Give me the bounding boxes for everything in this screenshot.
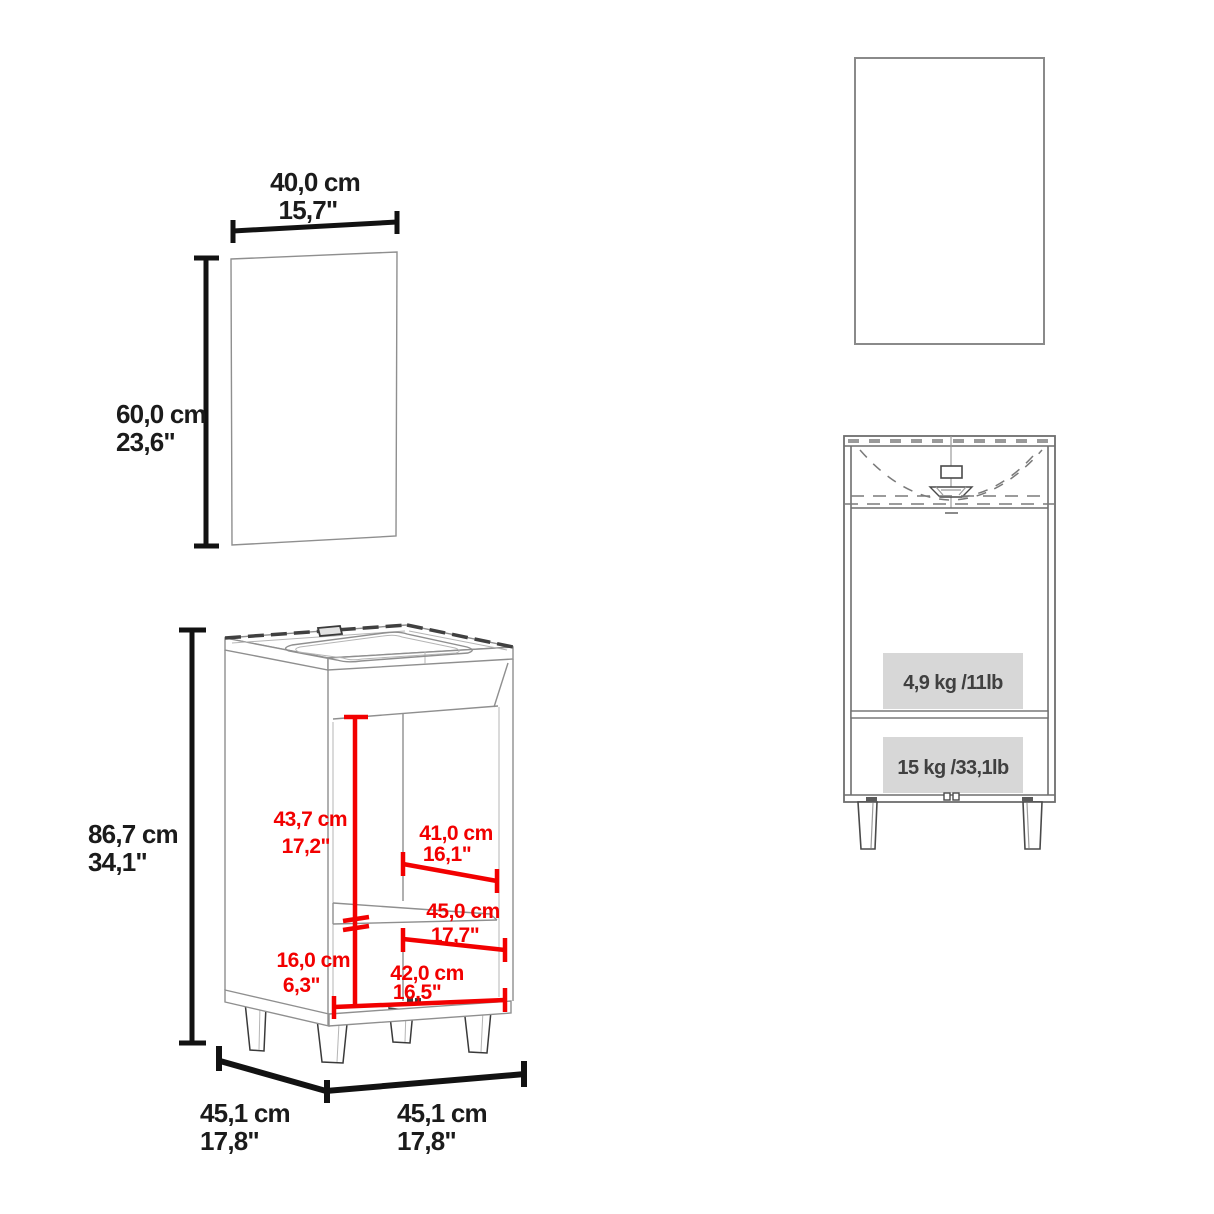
leg-left <box>858 802 877 849</box>
faucet-hole <box>318 626 342 636</box>
mirror-front-view <box>855 58 1044 344</box>
mirror-height-cm-label: 60,0 cm <box>116 399 206 429</box>
vanity-front-view: 4,9 kg /11lb 15 kg /33,1lb <box>844 436 1055 849</box>
mirror-panel <box>231 252 397 545</box>
vanity-width-inches-label: 17,8" <box>397 1126 456 1156</box>
mirror-height-inches-label: 23,6" <box>116 427 175 457</box>
vanity-height-inches-label: 34,1" <box>88 847 147 877</box>
shelf-width-cm-label: 45,0 cm <box>426 900 500 923</box>
interior-upper-width-cm-label: 41,0 cm <box>419 822 493 845</box>
interior-upper-width-inches-label: 16,1" <box>423 843 471 866</box>
interior-lower-height-inches-label: 6,3" <box>283 974 320 997</box>
mirror-side-view: 40,0 cm 15,7" 60,0 cm 23,6" <box>116 167 397 546</box>
interior-upper-height-inches-label: 17,2" <box>282 835 330 858</box>
upper-capacity-text: 4,9 kg /11lb <box>903 672 1003 694</box>
interior-lower-height-cm-label: 16,0 cm <box>276 949 350 972</box>
mirror-width-cm-label: 40,0 cm <box>270 167 360 197</box>
interior-upper-width-dimension: 41,0 cm 16,1" <box>403 822 497 893</box>
vanity-width-dimension: 45,1 cm 17,8" <box>397 1098 487 1156</box>
lower-capacity-label: 15 kg /33,1lb <box>883 737 1023 793</box>
lower-capacity-text: 15 kg /33,1lb <box>897 757 1009 779</box>
shelf-front <box>851 711 1048 718</box>
vanity-depth-inches-label: 17,8" <box>200 1126 259 1156</box>
mirror-front-panel <box>855 58 1044 344</box>
vanity-depth-cm-label: 45,1 cm <box>200 1098 290 1128</box>
vanity-height-dimension: 86,7 cm 34,1" <box>88 630 206 1043</box>
interior-lower-width-inches-label: 16,5" <box>393 981 441 1004</box>
shelf-width-inches-label: 17,7" <box>431 924 479 947</box>
vanity-countertop <box>225 625 513 670</box>
interior-upper-height-cm-label: 43,7 cm <box>273 808 347 831</box>
vanity-perspective-view: 43,7 cm 17,2" 41,0 cm 16,1" 45,0 cm 17,7… <box>88 625 525 1156</box>
leg-right <box>1023 802 1042 849</box>
faucet-hole-front <box>941 466 962 478</box>
vanity-height-cm-label: 86,7 cm <box>88 819 178 849</box>
furniture-dimension-diagram: 40,0 cm 15,7" 60,0 cm 23,6" <box>0 0 1214 1214</box>
upper-capacity-label: 4,9 kg /11lb <box>883 653 1023 709</box>
mirror-width-inches-label: 15,7" <box>279 195 338 225</box>
base-hinge-mark <box>953 793 959 800</box>
base-hinge-mark <box>944 793 950 800</box>
mirror-width-dimension: 40,0 cm 15,7" <box>233 167 397 243</box>
vanity-width-cm-label: 45,1 cm <box>397 1098 487 1128</box>
interior-lower-height-dimension: 16,0 cm 6,3" <box>276 949 350 997</box>
front-view-legs <box>858 802 1042 849</box>
mirror-height-dimension: 60,0 cm 23,6" <box>116 258 219 546</box>
